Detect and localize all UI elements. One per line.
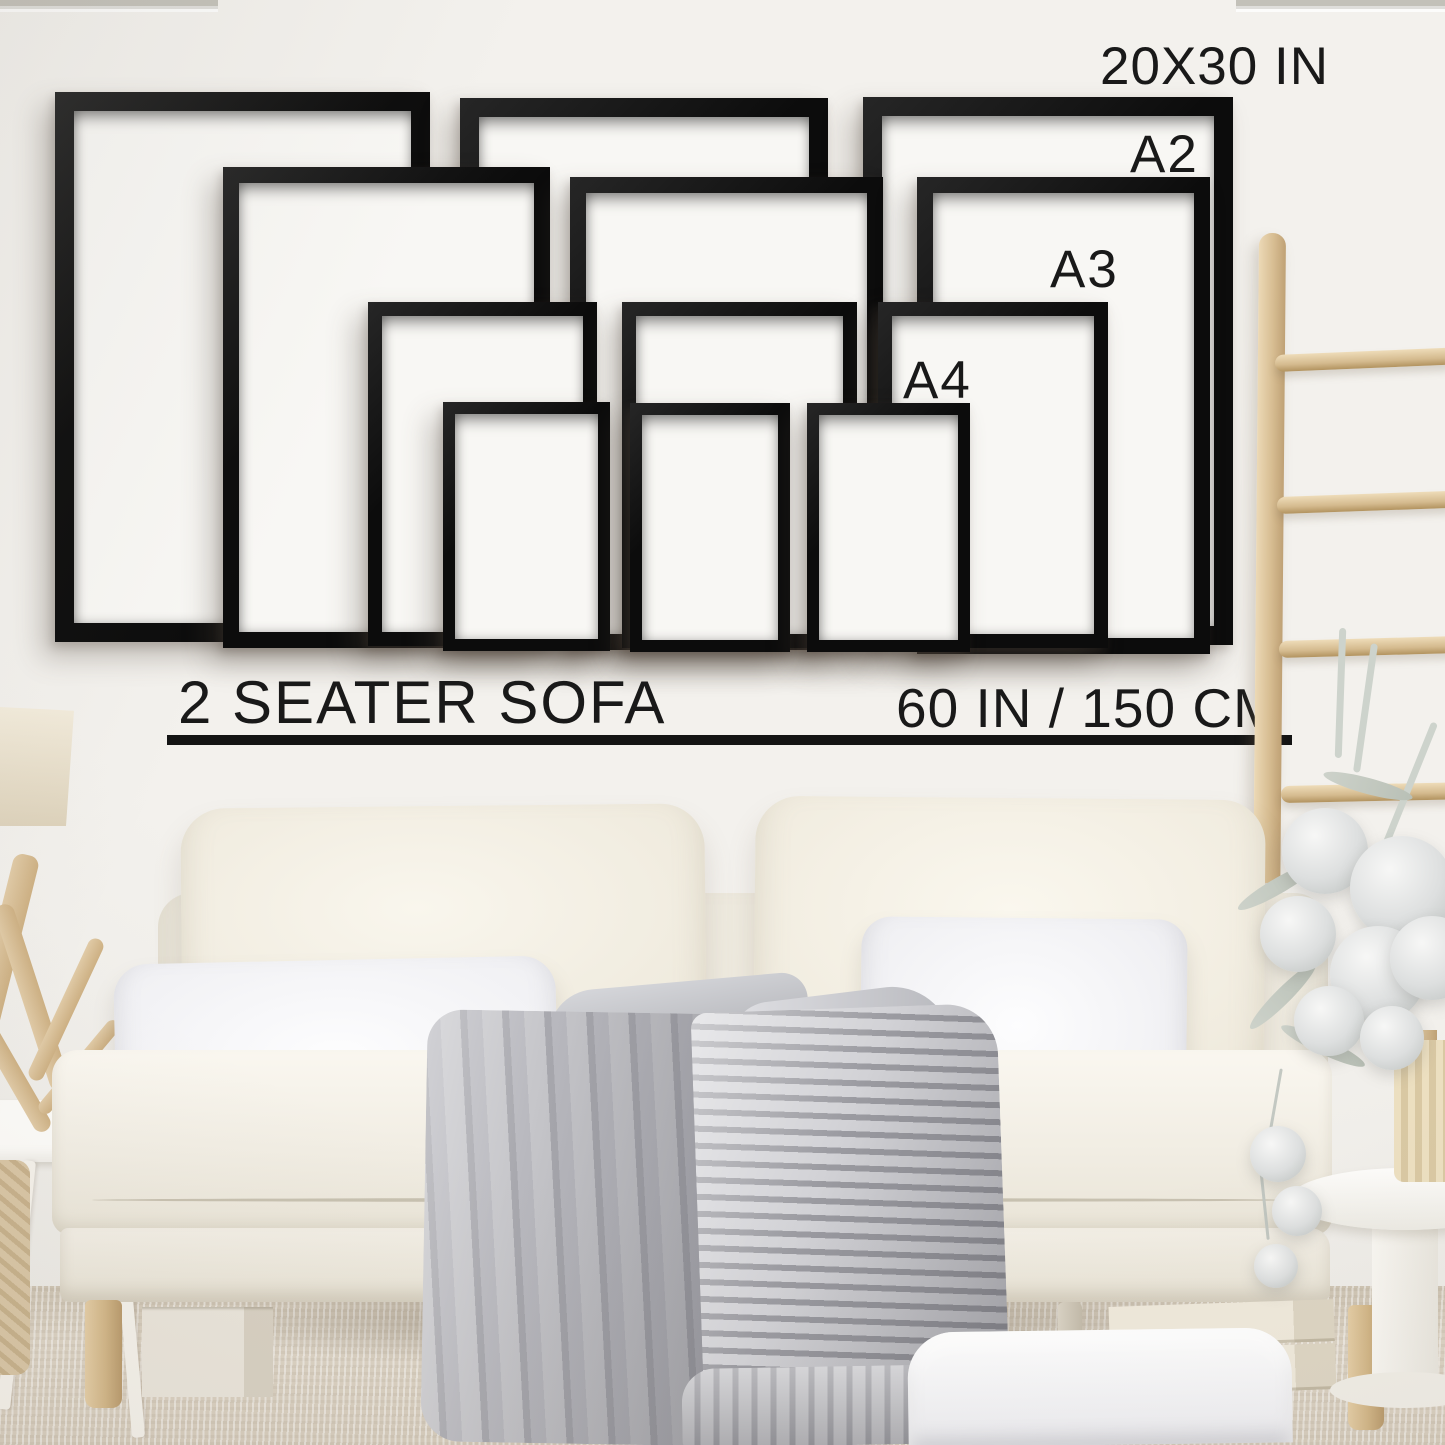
frame-a4-left <box>443 402 610 651</box>
frame-a4-middle <box>630 403 790 652</box>
frame-mat <box>642 415 778 640</box>
frame-mat <box>819 415 958 640</box>
flower-bouquet <box>1242 688 1445 1308</box>
size-label-a2: A2 <box>1130 124 1199 185</box>
blossom <box>1254 1244 1298 1288</box>
blossom <box>1294 986 1364 1056</box>
sofa-label: 2 SEATER SOFA <box>178 668 666 737</box>
frame-mat <box>455 414 598 639</box>
wainscot-rail-left-lower <box>0 0 218 9</box>
size-label-20x30: 20X30 IN <box>1100 36 1329 97</box>
floor-cushion <box>907 1327 1293 1445</box>
blossom <box>1260 896 1336 972</box>
sofa-width-line <box>167 735 1292 745</box>
blossom <box>1272 1186 1322 1236</box>
wainscot-rail-right-lower <box>1236 0 1445 9</box>
wicker-basket <box>0 1160 30 1375</box>
sprig <box>1383 721 1438 844</box>
sofa-width-label: 60 IN / 150 CM <box>896 676 1280 740</box>
sofa-leg-left <box>85 1300 122 1408</box>
size-label-a4: A4 <box>903 350 972 411</box>
size-guide-scene: 20X30 IN A2 A3 A4 2 SEATER SOFA 60 IN / … <box>0 0 1445 1445</box>
blossom <box>1360 1006 1424 1070</box>
table-lamp-shade <box>0 706 74 826</box>
storage-box-left <box>142 1307 273 1397</box>
blossom <box>1250 1126 1306 1182</box>
frame-a4-right <box>807 403 970 652</box>
size-label-a3: A3 <box>1050 239 1119 300</box>
leaf <box>1321 766 1414 805</box>
